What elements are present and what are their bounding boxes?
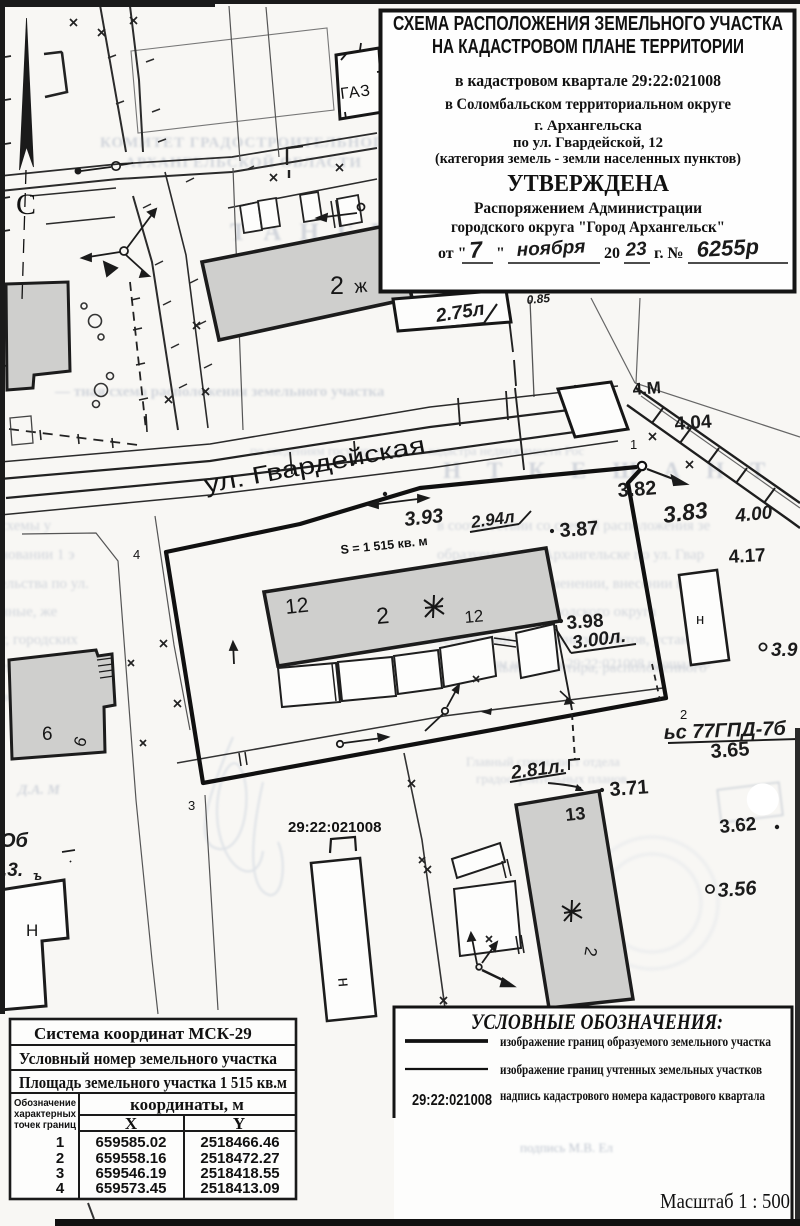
svg-text:подпись М.В. Ел: подпись М.В. Ел — [520, 1140, 613, 1155]
svg-text:С: С — [16, 188, 36, 221]
svg-text:Система координат МСК-29: Система координат МСК-29 — [34, 1024, 252, 1043]
svg-text:.3.: .3. — [2, 860, 23, 881]
svg-text:новании 1 э: новании 1 э — [0, 547, 75, 563]
svg-text:23: 23 — [624, 239, 648, 262]
svg-text:2: 2 — [680, 707, 687, 722]
svg-text:4.М: 4.М — [632, 378, 662, 399]
svg-text:Распоряжением Администрации: Распоряжением Администрации — [474, 200, 702, 217]
svg-text:3.56: 3.56 — [717, 877, 758, 902]
svg-text:4.04: 4.04 — [674, 411, 713, 435]
svg-text:2: 2 — [330, 272, 344, 300]
svg-text:ж: ж — [353, 276, 368, 298]
svg-text:т, городских: т, городских — [0, 632, 78, 648]
svg-text:(категория земель - земли насе: (категория земель - земли населенных пун… — [435, 151, 741, 167]
svg-text:29:22:021008: 29:22:021008 — [288, 819, 381, 836]
svg-text:4.17: 4.17 — [728, 545, 766, 568]
svg-text:НА КАДАСТРОВОМ ПЛАНЕ ТЕРРИТОРИ: НА КАДАСТРОВОМ ПЛАНЕ ТЕРРИТОРИИ — [432, 36, 744, 58]
svg-text:12: 12 — [284, 594, 310, 619]
svg-text:— тная схема расположения зем: — тная схема расположения земельного уча… — [54, 384, 385, 400]
svg-text:в Соломбальском территориально: в Соломбальском территориальном округе — [445, 96, 731, 113]
svg-text:Н: Н — [26, 921, 38, 940]
svg-text:1: 1 — [630, 437, 637, 452]
svg-text:н: н — [696, 611, 704, 628]
svg-text:3: 3 — [188, 798, 195, 813]
svg-text:ноября: ноября — [516, 236, 586, 261]
svg-text:3.82: 3.82 — [617, 477, 657, 502]
svg-text:городского округа "Город Архан: городского округа "Город Архангельск" — [451, 219, 725, 236]
svg-text:СХЕМА РАСПОЛОЖЕНИЯ ЗЕМЕЛЬНОГО: СХЕМА РАСПОЛОЖЕНИЯ ЗЕМЕЛЬНОГО УЧАСТКА — [393, 13, 783, 35]
svg-text:4: 4 — [56, 1180, 65, 1197]
svg-text:1: 1 — [56, 1134, 64, 1151]
svg-text:Площадь земельного участка 1 5: Площадь земельного участка 1 515 кв.м — [19, 1073, 287, 1092]
svg-text:3.71: 3.71 — [609, 776, 649, 801]
svg-text:от ": от " — [438, 245, 467, 262]
svg-text:Y: Y — [233, 1114, 245, 1133]
svg-text:в кадастровом квартале 29:22:0: в кадастровом квартале 29:22:021008 — [455, 71, 721, 90]
svg-text:3.87: 3.87 — [559, 517, 599, 542]
svg-text:УТВЕРЖДЕНА: УТВЕРЖДЕНА — [507, 171, 670, 197]
svg-text:3.65: 3.65 — [710, 738, 750, 763]
svg-text:по ул. Гвардейской, 12: по ул. Гвардейской, 12 — [513, 135, 663, 151]
svg-text:УСЛОВНЫЕ ОБОЗНАЧЕНИЯ:: УСЛОВНЫЕ ОБОЗНАЧЕНИЯ: — [471, 1009, 723, 1034]
svg-text:13: 13 — [564, 803, 586, 825]
svg-text:6255р: 6255р — [696, 234, 760, 262]
svg-text:2: 2 — [375, 602, 390, 629]
svg-text:Д.А. М: Д.А. М — [16, 783, 60, 798]
svg-text:20: 20 — [604, 245, 620, 262]
svg-text:г. Архангельска: г. Архангельска — [534, 118, 642, 134]
svg-text:точек границ: точек границ — [14, 1119, 76, 1131]
svg-text:4: 4 — [133, 547, 140, 562]
svg-text:нные, же: нные, же — [0, 604, 57, 620]
svg-text:3.62: 3.62 — [719, 814, 758, 838]
svg-text:ъ: ъ — [33, 868, 42, 883]
svg-text:": " — [496, 245, 505, 262]
svg-text:4.00: 4.00 — [733, 502, 773, 527]
svg-text:12: 12 — [464, 606, 485, 627]
svg-text:3.9: 3.9 — [771, 640, 798, 661]
svg-text:2518466.46: 2518466.46 — [200, 1134, 279, 1151]
svg-text:X: X — [125, 1114, 138, 1133]
svg-text:3.83: 3.83 — [661, 497, 709, 528]
svg-text:6: 6 — [42, 724, 53, 745]
svg-text:Условный номер земельного учас: Условный номер земельного участка — [19, 1049, 277, 1068]
svg-text:изображение границ образуемого: изображение границ образуемого земельног… — [500, 1034, 771, 1049]
svg-text:3.93: 3.93 — [403, 505, 444, 531]
svg-text:схемы у: схемы у — [0, 518, 52, 534]
svg-text:координаты, м: координаты, м — [130, 1095, 244, 1114]
svg-text:ельства по ул.: ельства по ул. — [0, 576, 89, 592]
svg-text:надпись кадастрового номера ка: надпись кадастрового номера кадастрового… — [500, 1088, 765, 1103]
svg-text:н: н — [334, 977, 354, 988]
svg-text:659573.45: 659573.45 — [96, 1180, 167, 1197]
svg-text:659585.02: 659585.02 — [96, 1134, 167, 1151]
svg-text:Масштаб 1 : 500: Масштаб 1 : 500 — [660, 1189, 790, 1213]
svg-text:2518413.09: 2518413.09 — [200, 1180, 279, 1197]
svg-text:29:22:021008: 29:22:021008 — [412, 1092, 492, 1109]
svg-text:изображение границ учтенных зе: изображение границ учтенных земельных уч… — [500, 1062, 762, 1077]
svg-text:г. №: г. № — [654, 245, 684, 262]
